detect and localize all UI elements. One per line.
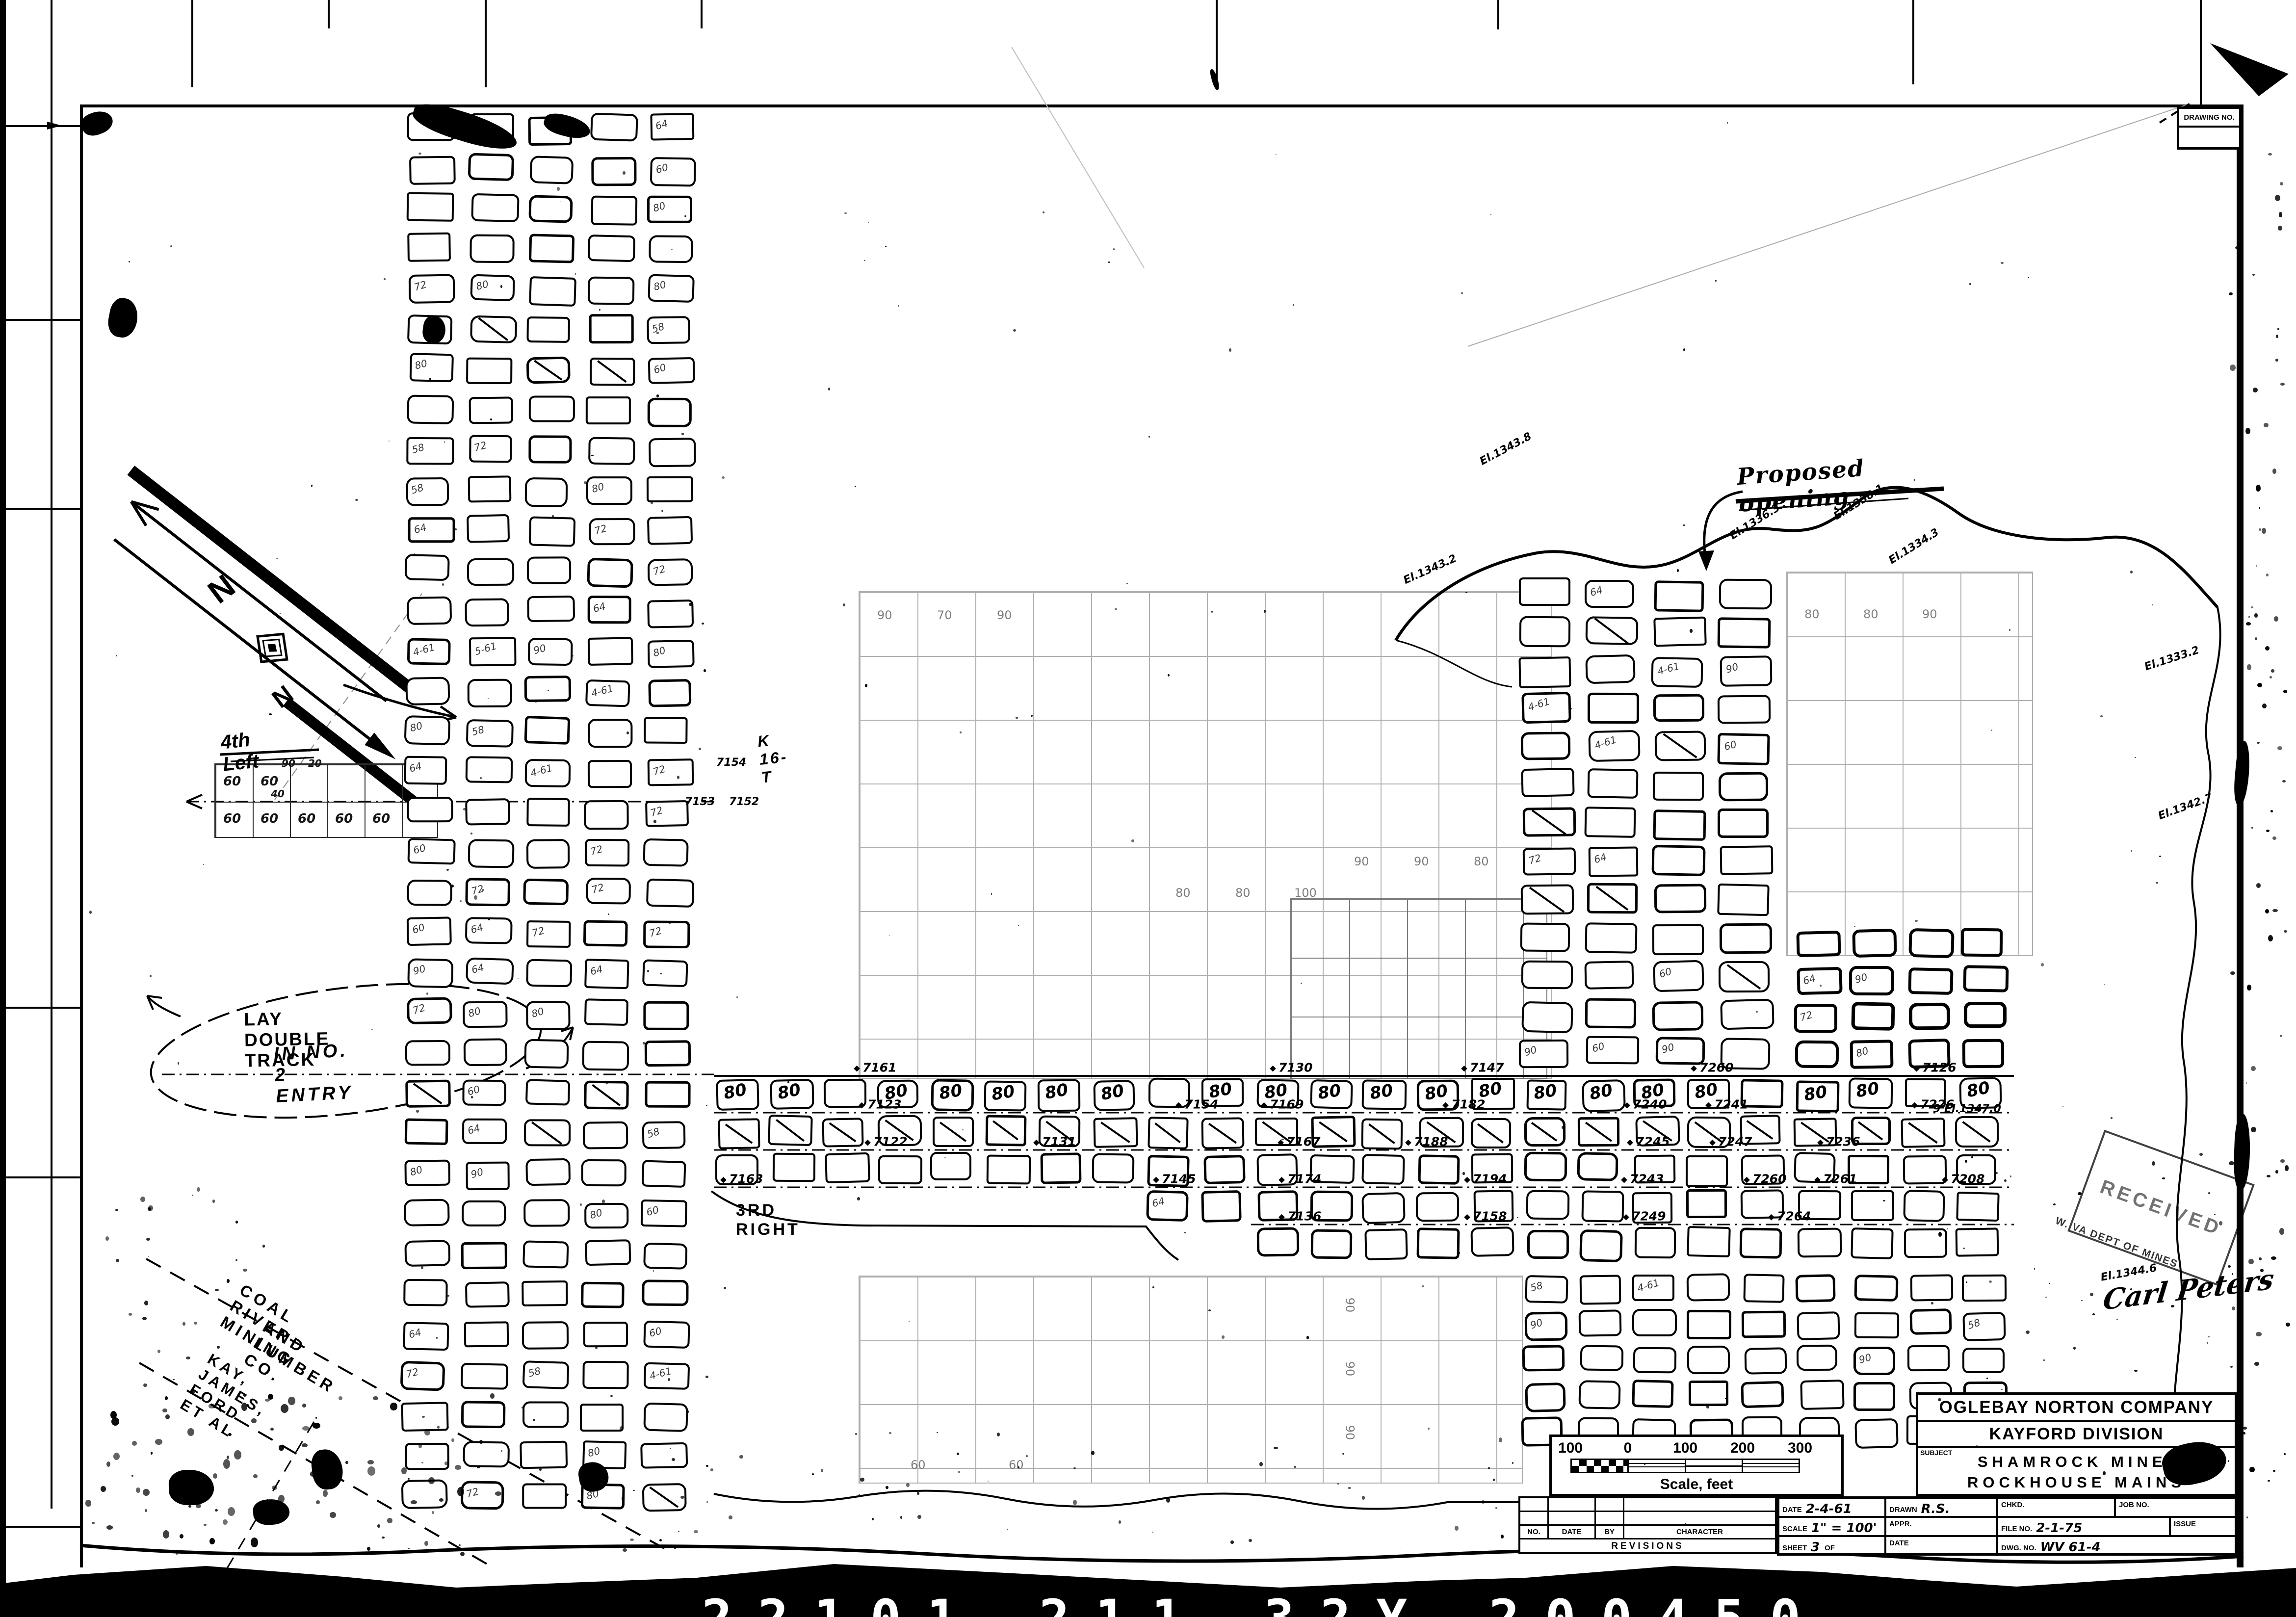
dwg-no-value: WV 61-4 — [2040, 1540, 2101, 1555]
mine-pillar — [526, 798, 570, 827]
mine-pillar — [405, 554, 450, 581]
scan-speckle — [2247, 664, 2251, 670]
scan-speckle — [739, 1455, 743, 1458]
scan-speckle — [1715, 280, 1716, 282]
mine-pillar — [1853, 1382, 1895, 1411]
mine-pillar — [461, 1363, 508, 1390]
pillar-slash-mark — [531, 1121, 562, 1145]
scan-speckle — [490, 1393, 495, 1398]
scan-speckle — [2271, 669, 2274, 673]
scan-speckle — [2100, 715, 2103, 717]
mine-pillar — [526, 356, 570, 384]
scan-speckle — [243, 1394, 247, 1396]
pillar-scribble: 64 — [589, 963, 604, 978]
mine-pillar — [584, 998, 628, 1026]
room-dimension-number: 40 — [271, 788, 285, 800]
mine-pillar — [647, 516, 693, 545]
scan-speckle — [2207, 1342, 2208, 1344]
survey-station-marker — [1814, 1176, 1821, 1183]
mine-pillar — [649, 438, 696, 467]
pillar-area-label: 80 — [1316, 1080, 1342, 1103]
scan-speckle — [451, 885, 453, 887]
survey-station-marker — [864, 1139, 871, 1146]
mine-pillar — [1686, 1189, 1727, 1218]
scan-speckle — [488, 698, 489, 699]
mine-pillar: 64 — [1147, 1190, 1189, 1222]
mine-pillar — [470, 315, 517, 343]
mine-pillar: 60 — [641, 1200, 687, 1227]
scan-speckle — [699, 748, 701, 750]
mine-pillar: 58 — [1525, 1275, 1568, 1304]
mine-pillar — [465, 1281, 509, 1308]
pillar-scribble: 72 — [405, 1366, 420, 1381]
pillar-scribble: 64 — [1151, 1195, 1166, 1210]
pillar-scribble: 64 — [1589, 583, 1604, 598]
mine-pillar: 58 — [466, 719, 513, 748]
mine-pillar — [1910, 1275, 1953, 1302]
mine-pillar — [1903, 1190, 1945, 1222]
scan-speckle — [906, 1483, 910, 1487]
pillar-area-label: 80 — [1802, 1082, 1828, 1105]
scan-speckle — [1969, 283, 1971, 285]
pillar-area-label: 80 — [1368, 1081, 1394, 1104]
rev-date-header: DATE — [1549, 1526, 1596, 1538]
scan-speckle — [917, 1515, 921, 1519]
scan-speckle — [116, 655, 117, 656]
mine-pillar — [1524, 1117, 1565, 1147]
mine-pillar: 72 — [409, 274, 455, 304]
mine-pillar — [583, 1322, 628, 1347]
scan-speckle — [1517, 1217, 1518, 1218]
mine-pillar — [1652, 1001, 1703, 1031]
mine-pillar — [1579, 1380, 1621, 1409]
mine-pillar — [1585, 961, 1634, 990]
mine-pillar — [1852, 928, 1897, 957]
mine-pillar — [526, 959, 572, 988]
scan-speckle — [2104, 984, 2105, 985]
drawn-value: R.S. — [1921, 1502, 1950, 1516]
scan-speckle — [857, 1197, 860, 1200]
appr-label: APPR. — [1889, 1520, 1912, 1528]
scan-speckle — [860, 1478, 864, 1482]
scan-speckle — [180, 1534, 183, 1539]
scan-speckle — [898, 305, 899, 307]
rev-character-header: CHARACTER — [1624, 1526, 1775, 1538]
pillar-scribble: 64 — [408, 760, 423, 775]
company-name: OGLEBAY NORTON COMPANY — [1918, 1395, 2235, 1422]
scan-speckle — [432, 1511, 435, 1514]
mine-pillar — [1522, 1345, 1565, 1371]
pillar-area-label: 80 — [776, 1080, 802, 1103]
mine-pillar — [1903, 1155, 1947, 1184]
scan-speckle — [2246, 1516, 2248, 1518]
scan-speckle — [2219, 1221, 2222, 1226]
mine-pillar: 80 — [1526, 1079, 1566, 1110]
pillar-slash-mark — [829, 1122, 856, 1142]
mine-pillar — [1520, 923, 1570, 952]
scan-speckle — [687, 1410, 689, 1412]
mine-pillar: 90 — [407, 958, 453, 988]
scan-speckle — [630, 1539, 634, 1541]
projected-room-number: 90 — [1343, 1361, 1357, 1377]
scan-speckle — [2103, 1471, 2105, 1475]
scan-speckle — [2251, 1127, 2256, 1132]
scan-speckle — [670, 1448, 671, 1449]
scan-speckle — [192, 1195, 193, 1196]
mine-pillar — [468, 475, 512, 503]
mine-pillar — [465, 598, 509, 626]
mine-pillar — [590, 112, 638, 141]
mine-pillar: 80 — [1362, 1080, 1407, 1110]
survey-station-marker — [1153, 1176, 1159, 1183]
date2-label: DATE — [1889, 1539, 1909, 1547]
mine-pillar — [1471, 1118, 1511, 1148]
mine-pillar — [585, 1239, 631, 1266]
mine-pillar — [1719, 579, 1772, 610]
mine-pillar: 60 — [1717, 733, 1770, 765]
mine-pillar — [468, 839, 515, 868]
mine-pillar — [1580, 1275, 1621, 1304]
mine-pillar — [1909, 928, 1955, 958]
mine-pillar — [1586, 616, 1639, 645]
survey-station-number: 7241 — [1706, 1097, 1748, 1112]
mine-pillar — [464, 1321, 509, 1347]
mine-pillar — [529, 156, 574, 185]
scan-speckle — [241, 1403, 247, 1411]
pillar-slash-mark — [1155, 1123, 1181, 1144]
mine-pillar: 90 — [1519, 1040, 1568, 1069]
scan-speckle — [382, 1537, 384, 1538]
survey-station-number: 7188 — [1406, 1135, 1448, 1149]
pillar-scribble: 4-61 — [529, 762, 554, 779]
mine-pillar: 80 — [463, 1001, 507, 1027]
mine-pillar — [1471, 1226, 1515, 1257]
scan-speckle — [384, 278, 386, 280]
mine-pillar — [405, 1040, 451, 1066]
mine-pillar — [1418, 1155, 1460, 1185]
room-dimension-number: 60 — [335, 811, 353, 826]
scale-cell: SCALE 1" = 100' — [1779, 1518, 1886, 1535]
mine-pillar — [587, 558, 634, 588]
survey-station-number: 7249 — [1624, 1209, 1666, 1224]
mine-pillar — [768, 1115, 813, 1147]
survey-station-marker — [1744, 1176, 1750, 1183]
pillar-slash-mark — [1477, 1123, 1504, 1144]
scan-speckle — [408, 1548, 410, 1549]
scan-speckle — [1820, 985, 1822, 986]
scan-speckle — [2171, 1305, 2174, 1307]
mine-pillar — [1957, 1192, 2000, 1222]
scan-speckle — [251, 1538, 258, 1547]
survey-station-marker — [1033, 1139, 1040, 1146]
scan-speckle — [2251, 606, 2254, 608]
room-dimension-number: 90 — [282, 757, 295, 769]
pillar-scribble: 80 — [1854, 1044, 1870, 1059]
mine-pillar — [582, 1121, 628, 1149]
file-no-cell: FILE NO. 2-1-75 — [1998, 1518, 2171, 1535]
scan-speckle — [2228, 1265, 2231, 1268]
mine-pillar — [588, 276, 634, 305]
survey-station-number: 7163 — [721, 1172, 763, 1186]
mine-pillar — [1361, 1118, 1403, 1149]
third-right-label: 3RD RIGHT — [736, 1201, 800, 1239]
mine-pillar — [405, 1443, 449, 1470]
mine-pillar: 64 — [1589, 846, 1639, 877]
pillar-scribble: 64 — [592, 600, 607, 615]
mine-pillar — [1653, 694, 1704, 722]
scan-speckle — [2246, 1082, 2247, 1084]
mine-pillar — [1796, 931, 1841, 958]
projected-room-number: 90 — [1343, 1425, 1357, 1440]
mine-pillar — [1963, 965, 2009, 992]
projected-room-number: 90 — [997, 608, 1012, 622]
survey-station-marker — [1270, 1065, 1276, 1071]
mine-pillar — [583, 1361, 629, 1389]
mine-pillar — [1585, 998, 1637, 1029]
scan-speckle — [610, 1395, 612, 1397]
mine-pillar — [1523, 807, 1576, 836]
scan-speckle — [1073, 1467, 1075, 1469]
scan-speckle — [584, 481, 586, 485]
file-no-value: 2-1-75 — [2036, 1521, 2082, 1535]
pillar-area-label: 80 — [1532, 1081, 1558, 1104]
north-letter: N — [201, 567, 242, 610]
scan-speckle — [281, 1404, 288, 1413]
title-block-row3: SHEET 3 OF DATE DWG. NO. WV 61-4 — [1779, 1537, 2235, 1556]
survey-station-marker — [1624, 1102, 1630, 1108]
revision-cell — [1624, 1512, 1775, 1524]
survey-station-marker — [1464, 1214, 1470, 1220]
scan-speckle — [215, 1509, 218, 1512]
scan-speckle — [106, 1525, 113, 1530]
mine-pillar: 60 — [1586, 1036, 1639, 1065]
scan-speckle — [608, 913, 609, 915]
pillar-slash-mark — [478, 317, 509, 341]
scan-speckle — [1493, 1479, 1495, 1481]
mine-pillar — [1655, 731, 1706, 761]
rev-by-header: BY — [1596, 1526, 1624, 1538]
scan-speckle — [872, 1518, 874, 1520]
scan-speckle — [1264, 610, 1266, 613]
mine-pillar — [466, 756, 513, 784]
mine-pillar — [584, 1080, 629, 1109]
scan-speckle — [157, 1350, 160, 1353]
survey-station-marker — [1623, 1214, 1629, 1220]
scan-speckle — [1229, 348, 1231, 352]
survey-station-number: 7247 — [1710, 1135, 1752, 1149]
scan-speckle — [2001, 262, 2004, 264]
mine-pillar — [1041, 1152, 1082, 1184]
scan-speckle — [1562, 1126, 1564, 1129]
scan-speckle — [265, 1399, 269, 1402]
pillar-scribble: 80 — [409, 1163, 424, 1178]
pillar-slash-mark — [1529, 887, 1565, 913]
oval-hook-arrow — [147, 996, 181, 1017]
pillar-scribble: 4-61 — [590, 682, 614, 699]
mine-pillar — [591, 157, 637, 186]
mine-pillar — [407, 233, 451, 262]
dwg-no-cell: DWG. NO. WV 61-4 — [1998, 1537, 2235, 1556]
pillar-scribble: 4-61 — [1527, 695, 1551, 713]
scan-speckle — [1482, 1500, 1485, 1504]
mine-pillar — [645, 1040, 691, 1067]
mine-pillar — [1652, 845, 1706, 876]
scan-speckle — [339, 1396, 342, 1400]
mine-pillar — [1580, 1345, 1623, 1371]
scan-speckle — [479, 1440, 483, 1444]
scan-speckle — [377, 1524, 380, 1527]
mine-pillar: 64 — [1585, 580, 1634, 608]
scan-speckle — [1914, 479, 1915, 481]
room-dimension-number: 20 — [308, 757, 322, 769]
mine-pillar: 72 — [407, 997, 452, 1024]
pillar-scribble: 4-61 — [1636, 1277, 1661, 1295]
scan-speckle — [1683, 348, 1685, 351]
mine-pillar — [1525, 1382, 1566, 1412]
mine-pillar — [588, 437, 635, 465]
mine-pillar — [1962, 1274, 2007, 1301]
mine-pillar — [1851, 1002, 1895, 1030]
mine-pillar: 80 — [648, 274, 695, 303]
scan-speckle — [387, 1518, 392, 1523]
mine-pillar: 64 — [584, 959, 629, 989]
survey-station-marker — [1175, 1102, 1182, 1108]
scan-speckle — [176, 1552, 178, 1554]
survey-station-number: 7158 — [1465, 1209, 1507, 1224]
mine-pillar — [1851, 1227, 1894, 1259]
scan-speckle — [2230, 365, 2236, 371]
scan-speckle — [1211, 611, 1213, 613]
mine-pillar — [1687, 1310, 1731, 1339]
scan-speckle — [1293, 304, 1294, 306]
subject-label: SUBJECT — [1920, 1449, 1952, 1457]
scan-speckle — [311, 485, 313, 486]
scan-speckle — [580, 1203, 582, 1206]
mine-pillar — [1653, 809, 1706, 841]
mine-pillar — [1743, 1274, 1784, 1303]
mine-pillar — [471, 193, 519, 222]
mine-pillar — [718, 1118, 760, 1149]
stamp-text: RECEIVED — [2097, 1175, 2225, 1240]
pillar-scribble: 60 — [648, 1325, 663, 1339]
scan-speckle — [2043, 1359, 2045, 1360]
mine-pillar: 64 — [403, 1322, 449, 1351]
mine-pillar — [1854, 1418, 1898, 1448]
scan-speckle — [1126, 583, 1128, 584]
pillar-scribble: 60 — [1722, 738, 1738, 753]
mine-pillar — [1908, 967, 1954, 995]
scan-speckle — [2004, 1179, 2007, 1182]
scan-speckle — [188, 1505, 191, 1508]
scan-speckle — [488, 918, 490, 920]
pillar-slash-mark — [1908, 1122, 1937, 1144]
mine-pillar — [1910, 1308, 1952, 1335]
survey-station-number: 7154 — [1176, 1097, 1219, 1112]
scan-speckle — [2276, 335, 2278, 338]
mine-pillar — [1310, 1229, 1352, 1259]
scan-speckle — [1230, 1540, 1234, 1544]
scale-value: 1" = 100' — [1811, 1521, 1877, 1535]
scan-speckle — [148, 1207, 151, 1211]
mine-pillar — [1653, 617, 1706, 647]
mine-pillar — [1632, 1380, 1673, 1408]
survey-station-marker — [1709, 1139, 1716, 1146]
scan-speckle — [706, 1465, 709, 1467]
pillar-slash-mark — [1727, 964, 1761, 989]
mine-pillar: 60 — [408, 838, 456, 865]
pillar-area-label: 80 — [722, 1080, 749, 1104]
mine-pillar: 72 — [648, 558, 693, 586]
scan-speckle — [1152, 1286, 1154, 1288]
mine-pillar — [581, 1282, 625, 1308]
mine-pillar — [529, 396, 575, 422]
mine-pillar — [522, 1241, 569, 1269]
scale-tick: 0 — [1624, 1440, 1632, 1457]
scan-speckle — [1706, 1405, 1709, 1408]
mine-pillar — [640, 1442, 688, 1468]
pillar-scribble: 60 — [1657, 965, 1673, 980]
scan-speckle — [944, 1157, 945, 1158]
mine-pillar: 4-61 — [1651, 657, 1703, 688]
scan-speckle — [162, 1408, 167, 1412]
mine-pillar — [1585, 922, 1638, 954]
mine-pillar: 60 — [463, 1080, 506, 1106]
mine-pillar — [1740, 1227, 1782, 1259]
drawn-cell: DRAWN R.S. — [1886, 1499, 1998, 1516]
pillar-scribble: 72 — [652, 563, 667, 577]
scan-speckle — [401, 1467, 407, 1474]
scan-speckle — [471, 1096, 473, 1098]
mine-pillar — [642, 1483, 686, 1512]
scan-speckle — [460, 900, 462, 902]
mine-pillar: 60 — [643, 1320, 690, 1349]
scan-speckle — [2243, 1432, 2245, 1434]
mine-pillar — [1654, 580, 1704, 612]
mine-pillar — [1689, 1381, 1728, 1407]
scan-speckle — [477, 1466, 480, 1468]
survey-station-marker — [1911, 1102, 1918, 1108]
mine-pillar — [643, 1402, 688, 1432]
pillar-scribble: 58 — [1529, 1279, 1544, 1294]
pillar-scribble: 64 — [470, 921, 485, 936]
pillar-scribble: 64 — [412, 521, 427, 536]
mine-pillar — [1956, 1227, 1999, 1257]
pillar-slash-mark — [725, 1123, 753, 1144]
scan-speckle — [1499, 1437, 1502, 1442]
room-dimension-number: 60 — [223, 774, 241, 789]
scan-speckle — [2268, 1480, 2270, 1482]
mine-pillar — [644, 1001, 689, 1030]
scan-speckle — [885, 246, 887, 247]
survey-station-marker — [1817, 1139, 1824, 1146]
mine-pillar — [527, 557, 571, 584]
scan-speckle — [2130, 571, 2133, 574]
scan-speckle — [855, 1433, 857, 1435]
survey-station-marker — [1278, 1139, 1284, 1146]
mine-pillar — [1720, 999, 1774, 1030]
scan-speckle — [681, 433, 684, 435]
scan-speckle — [689, 603, 692, 606]
scan-speckle — [988, 1481, 989, 1482]
projected-room-number: 60 — [1009, 1458, 1024, 1472]
date-cell: DATE 2-4-61 — [1779, 1499, 1886, 1516]
scan-speckle — [89, 911, 92, 914]
mine-pillar — [523, 1199, 570, 1226]
mine-pillar — [586, 397, 631, 425]
survey-station-marker — [1705, 1102, 1712, 1108]
pillar-area-label: 80 — [990, 1081, 1016, 1104]
mine-pillar — [1521, 961, 1573, 990]
